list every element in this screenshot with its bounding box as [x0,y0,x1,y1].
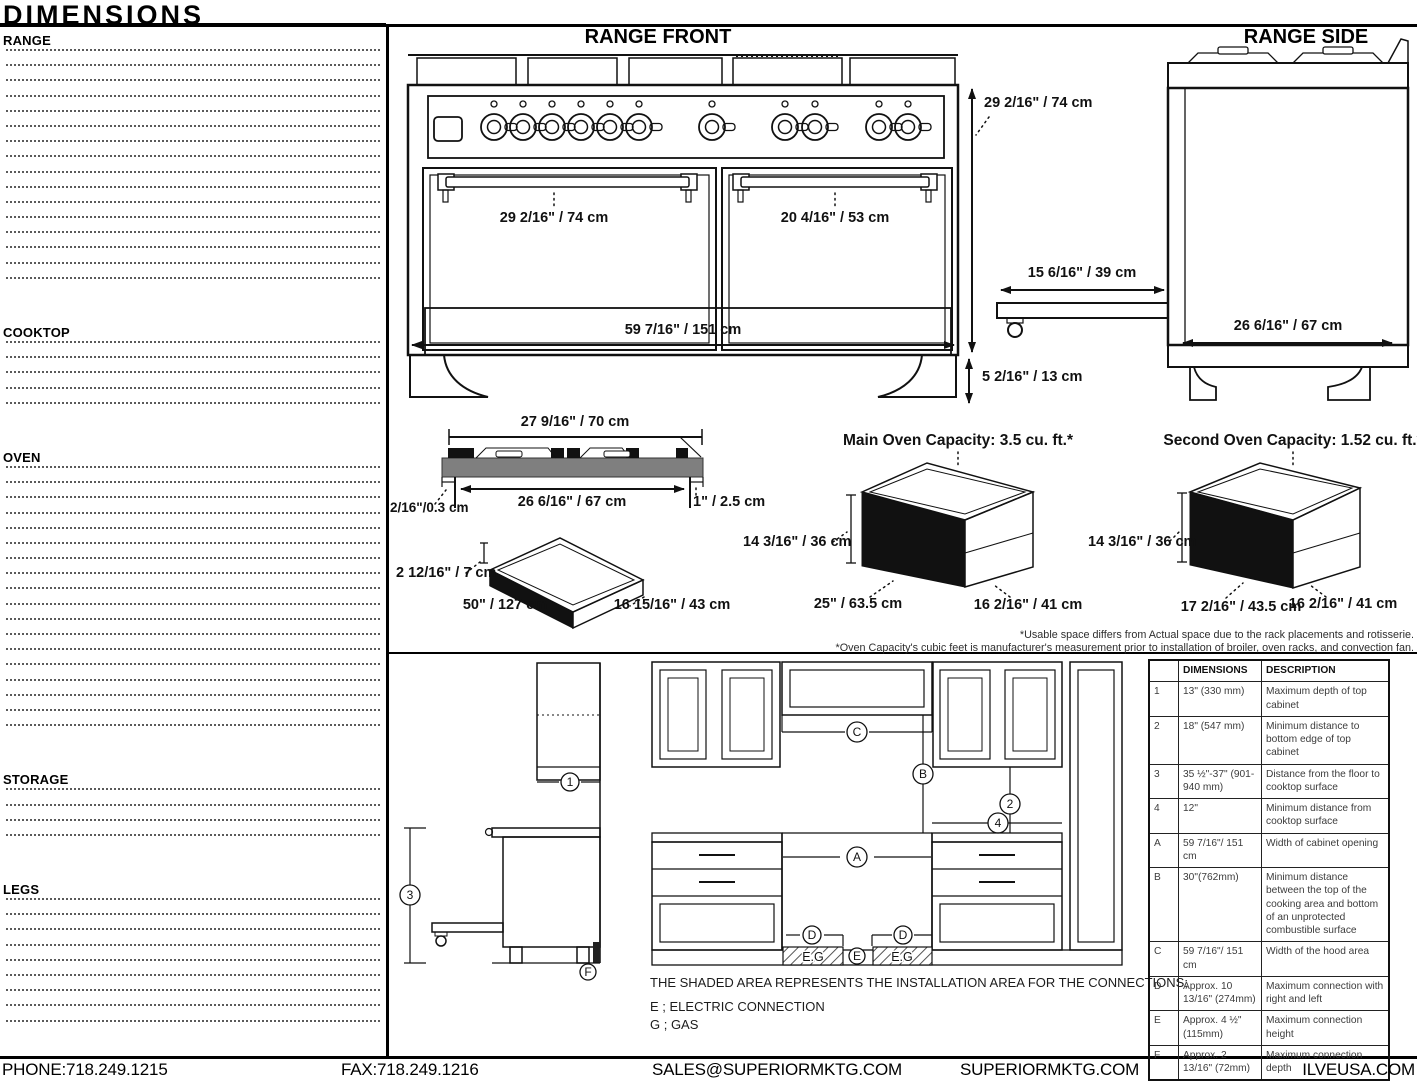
storage-height-dim: 2 12/16" / 7 cm [396,565,496,581]
dotted-leader [6,79,380,81]
spec-row [3,587,383,602]
spec-row [3,95,383,110]
footnote-1: *Usable space differs from Actual space … [1020,629,1414,641]
installation-note-electric: E ; ELECTRIC CONNECTION [650,999,825,1014]
spec-row [3,944,383,959]
front-second-handle-dim: 20 4/16" / 53 cm [781,210,889,226]
main-oven-width-dim: 25" / 63.5 cm [814,596,902,612]
dotted-leader [6,959,380,961]
dotted-leader [6,277,380,279]
dotted-leader [6,95,380,97]
spec-row [3,155,383,170]
spec-column: RANGE [3,33,383,1035]
table-cell-description: Minimum distance to bottom edge of top c… [1262,716,1390,764]
spec-row [3,663,383,678]
dotted-leader [6,155,380,157]
spec-row [3,618,383,633]
table-cell-dimensions: 13" (330 mm) [1179,682,1262,717]
table-cell-description: Minimum distance from cooktop surface [1262,799,1390,834]
spec-row [3,341,383,356]
spec-row [3,171,383,186]
spec-row [3,496,383,511]
dotted-leader [6,648,380,650]
dotted-leader [6,262,380,264]
spec-row [3,402,383,417]
dotted-leader [6,527,380,529]
cooktop-front-lip-dim: 2/16"/0.3 cm [390,500,468,515]
second-oven-drawing [1170,452,1360,598]
main-oven-drawing [833,452,1033,597]
spec-row [3,481,383,496]
spec-row [3,527,383,542]
callout-E: E [853,949,861,963]
table-cell-dimensions: 59 7/16"/ 151 cm [1179,833,1262,868]
spec-row [3,709,383,724]
callout-D-left: D [808,928,817,942]
dotted-leader [6,928,380,930]
spec-section: LEGS [3,882,383,1035]
spec-row [3,64,383,79]
front-height-dim: 29 2/16" / 74 cm [984,95,1092,111]
spec-row [3,834,383,849]
dotted-leader [6,371,380,373]
table-cell-dimensions: Approx. 2 13/16" (72mm) [1179,1045,1262,1080]
installation-side-view [400,663,600,980]
storage-width-dim: 50" / 127 cm [463,597,547,613]
dotted-leader [6,49,380,51]
dotted-leader [6,1020,380,1022]
dotted-leader [6,356,380,358]
callout-A: A [853,850,861,864]
spec-row [3,974,383,989]
table-cell-key: D [1149,976,1179,1011]
spec-section: COOKTOP [3,325,383,417]
table-cell-key: F [1149,1045,1179,1080]
range-side-drawing [997,39,1408,400]
table-cell-description: Distance from the floor to cooktop surfa… [1262,764,1390,799]
page-title: DIMENSIONS [3,0,204,31]
spec-row [3,898,383,913]
dotted-leader [6,898,380,900]
table-cell-key: E [1149,1011,1179,1046]
dotted-leader [6,663,380,665]
dotted-leader [6,402,380,404]
spec-rows [3,341,383,417]
table-cell-description: Maximum connection with right and left [1262,976,1390,1011]
spec-row [3,989,383,1004]
spec-row [3,49,383,64]
eg-label-right: E.G [891,950,913,964]
spec-row [3,186,383,201]
dotted-leader [6,709,380,711]
footer-brand[interactable]: ILVEUSA.COM [1302,1060,1415,1080]
dotted-leader [6,216,380,218]
main-oven-depth-dim: 16 2/16" / 41 cm [974,597,1082,613]
second-oven-width-dim: 17 2/16" / 43.5 cm [1181,599,1302,615]
dotted-leader [6,834,380,836]
spec-row [3,125,383,140]
dotted-leader [6,64,380,66]
callout-4: 4 [995,816,1002,830]
spec-row [3,679,383,694]
spec-row [3,959,383,974]
dotted-leader [6,819,380,821]
installation-note-shaded: THE SHADED AREA REPRESENTS THE INSTALLAT… [650,975,1188,990]
table-cell-dimensions: 59 7/16"/ 151 cm [1179,942,1262,977]
dotted-leader [6,557,380,559]
spec-row [3,371,383,386]
spec-row [3,466,383,481]
spec-row [3,512,383,527]
spec-row [3,356,383,371]
eg-label-left: E.G [802,950,824,964]
second-oven-capacity-title: Second Oven Capacity: 1.52 cu. ft.* [1163,432,1417,449]
installation-front-view [652,662,1122,965]
dotted-leader [6,481,380,483]
side-door-open-dim: 15 6/16" / 39 cm [1028,265,1136,281]
installation-dimensions-table: DIMENSIONS DESCRIPTION 1 13" (330 mm) Ma… [1148,659,1390,1081]
spec-rows [3,898,383,1035]
footer-website[interactable]: SUPERIORMKTG.COM [960,1060,1139,1080]
spec-row [3,140,383,155]
dotted-leader [6,201,380,203]
technical-drawings: 29 2/16" / 74 cm 20 4/16" / 53 cm 59 7/1… [388,25,1417,654]
second-oven-height-dim: 14 3/16" / 36 cm [1088,534,1196,550]
spec-row [3,648,383,663]
spec-row [3,928,383,943]
range-front-drawing [408,55,989,403]
dotted-leader [6,944,380,946]
table-cell-key: 2 [1149,716,1179,764]
spec-row [3,724,383,739]
spec-row [3,277,383,292]
spec-section-heading: STORAGE [3,772,383,787]
cooktop-top-width-dim: 27 9/16" / 70 cm [521,414,629,430]
installation-note-gas: G ; GAS [650,1017,698,1032]
table-header-row: DIMENSIONS DESCRIPTION [1149,660,1389,682]
dotted-leader [6,603,380,605]
spec-rows [3,466,383,739]
dotted-leader [6,542,380,544]
dotted-leader [6,913,380,915]
main-oven-capacity-title: Main Oven Capacity: 3.5 cu. ft.* [843,432,1074,449]
spec-row [3,913,383,928]
callout-F: F [584,965,591,979]
footer-fax: FAX:718.249.1216 [341,1060,479,1080]
dotted-leader [6,512,380,514]
table-cell-key: 4 [1149,799,1179,834]
footer-phone: PHONE:718.249.1215 [2,1060,168,1080]
dotted-leader [6,186,380,188]
dotted-leader [6,989,380,991]
table-cell-dimensions: 18" (547 mm) [1179,716,1262,764]
table-header-dimensions: DIMENSIONS [1179,660,1262,682]
second-oven-depth-dim: 16 2/16" / 41 cm [1289,596,1397,612]
dotted-leader [6,125,380,127]
table-row: D Approx. 10 13/16" (274mm) Maximum conn… [1149,976,1389,1011]
dotted-leader [6,110,380,112]
dotted-leader [6,804,380,806]
spec-section-heading: OVEN [3,450,383,465]
dotted-leader [6,572,380,574]
spec-row [3,201,383,216]
spec-row [3,804,383,819]
table-cell-key: 3 [1149,764,1179,799]
spec-row [3,557,383,572]
callout-D-right: D [899,928,908,942]
dotted-leader [6,679,380,681]
spec-row [3,79,383,94]
cooktop-bottom-width-dim: 26 6/16" / 67 cm [518,494,626,510]
spec-row [3,572,383,587]
table-row: 1 13" (330 mm) Maximum depth of top cabi… [1149,682,1389,717]
spec-row [3,633,383,648]
spec-section-heading: LEGS [3,882,383,897]
table-cell-dimensions: Approx. 10 13/16" (274mm) [1179,976,1262,1011]
callout-1: 1 [567,775,574,789]
callout-2: 2 [1007,797,1014,811]
table-row: A 59 7/16"/ 151 cm Width of cabinet open… [1149,833,1389,868]
table-cell-dimensions: 35 ½"-37" (901-940 mm) [1179,764,1262,799]
front-width-dim: 59 7/16" / 151 cm [625,322,742,338]
table-header-description: DESCRIPTION [1262,660,1390,682]
spec-row [3,110,383,125]
table-cell-key: C [1149,942,1179,977]
spec-section-heading: RANGE [3,33,383,48]
spec-row [3,216,383,231]
front-leg-dim: 5 2/16" / 13 cm [982,369,1082,385]
callout-C: C [853,725,862,739]
dotted-leader [6,724,380,726]
table-header-key [1149,660,1179,682]
table-cell-description: Maximum connection height [1262,1011,1390,1046]
spec-section-heading: COOKTOP [3,325,383,340]
spec-section: OVEN [3,450,383,739]
table-cell-description: Minimum distance between the top of the … [1262,868,1390,942]
footnote-2: *Oven Capacity's cubic feet is manufactu… [836,642,1414,654]
spec-section: RANGE [3,33,383,292]
table-row: 4 12" Minimum distance from cooktop surf… [1149,799,1389,834]
dotted-leader [6,387,380,389]
table-row: C 59 7/16"/ 151 cm Width of the hood are… [1149,942,1389,977]
dotted-leader [6,788,380,790]
cooktop-back-lip-dim: 1" / 2.5 cm [693,494,765,510]
table-row: 2 18" (547 mm) Minimum distance to botto… [1149,716,1389,764]
spec-row [3,387,383,402]
dotted-leader [6,633,380,635]
dotted-leader [6,974,380,976]
spec-rows [3,49,383,292]
dotted-leader [6,341,380,343]
table-row: E Approx. 4 ½" (115mm) Maximum connectio… [1149,1011,1389,1046]
table-row: B 30"(762mm) Minimum distance between th… [1149,868,1389,942]
spec-row [3,1004,383,1019]
spec-row [3,603,383,618]
dotted-leader [6,246,380,248]
table-cell-key: B [1149,868,1179,942]
footer-email[interactable]: SALES@SUPERIORMKTG.COM [652,1060,902,1080]
dotted-leader [6,231,380,233]
front-main-handle-dim: 29 2/16" / 74 cm [500,210,608,226]
dotted-leader [6,1004,380,1006]
spec-row [3,819,383,834]
spec-row [3,542,383,557]
table-cell-description: Width of cabinet opening [1262,833,1390,868]
table-cell-key: A [1149,833,1179,868]
table-cell-description: Maximum depth of top cabinet [1262,682,1390,717]
table-cell-description: Width of the hood area [1262,942,1390,977]
dotted-leader [6,496,380,498]
callout-3: 3 [407,888,414,902]
dotted-leader [6,466,380,468]
spec-row [3,788,383,803]
dotted-leader [6,171,380,173]
table-row: 3 35 ½"-37" (901-940 mm) Distance from t… [1149,764,1389,799]
side-depth-dim: 26 6/16" / 67 cm [1234,318,1342,334]
table-cell-dimensions: 30"(762mm) [1179,868,1262,942]
table-cell-key: 1 [1149,682,1179,717]
spec-row [3,246,383,261]
storage-drawer-drawing [466,538,644,628]
storage-depth-dim: 16 15/16" / 43 cm [614,597,731,613]
spec-rows [3,788,383,849]
spec-row [3,231,383,246]
table-cell-dimensions: 12" [1179,799,1262,834]
table-cell-dimensions: Approx. 4 ½" (115mm) [1179,1011,1262,1046]
spec-row [3,1020,383,1035]
dotted-leader [6,140,380,142]
spec-section: STORAGE [3,772,383,849]
spec-row [3,262,383,277]
spec-row [3,694,383,709]
main-oven-height-dim: 14 3/16" / 36 cm [743,534,851,550]
dotted-leader [6,587,380,589]
callout-B: B [919,767,927,781]
dotted-leader [6,694,380,696]
dotted-leader [6,618,380,620]
